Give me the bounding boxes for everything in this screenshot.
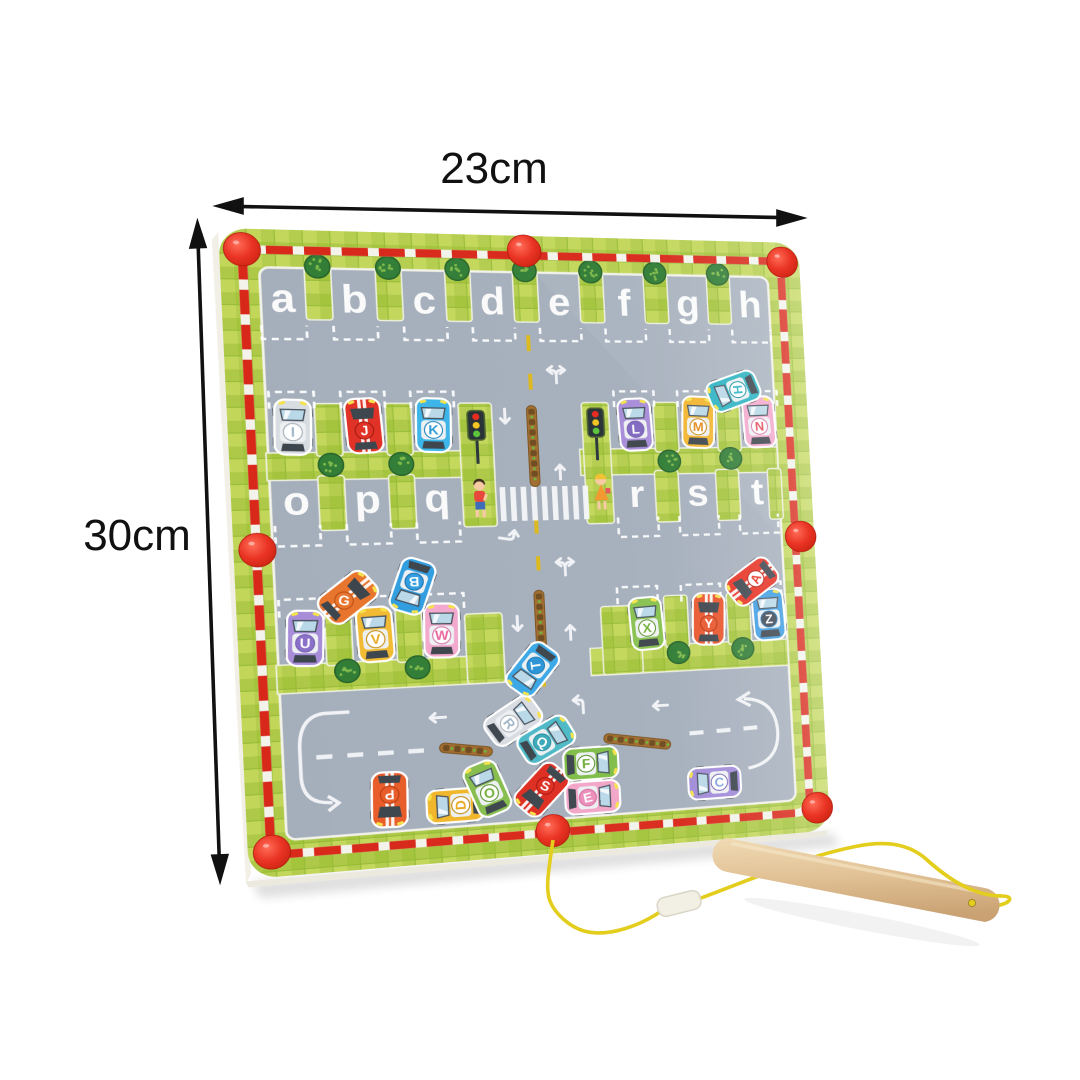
svg-text:23cm: 23cm — [440, 144, 548, 193]
svg-text:30cm: 30cm — [83, 511, 191, 560]
